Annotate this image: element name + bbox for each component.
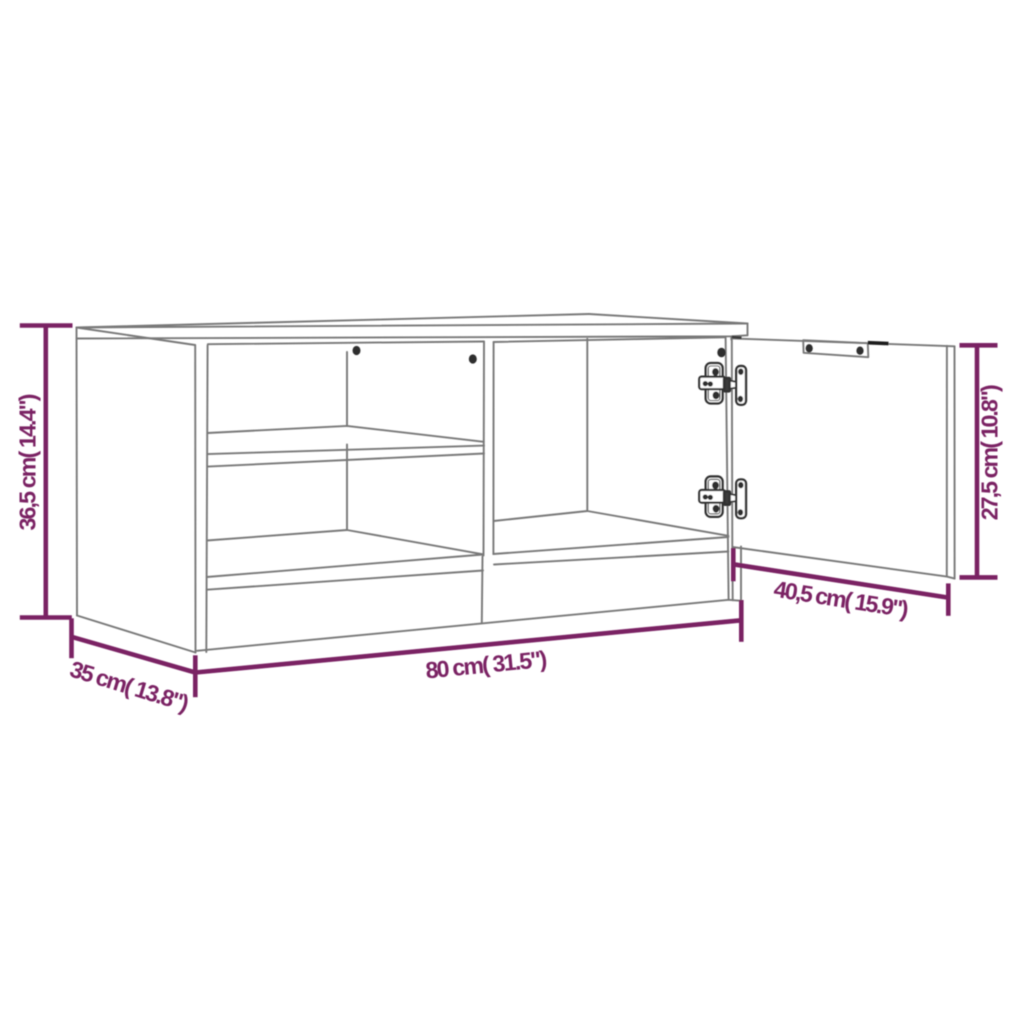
- svg-text:36,5 cm( 14.4"): 36,5 cm( 14.4"): [15, 394, 41, 531]
- svg-text:27,5 cm( 10.8"): 27,5 cm( 10.8"): [977, 384, 1003, 520]
